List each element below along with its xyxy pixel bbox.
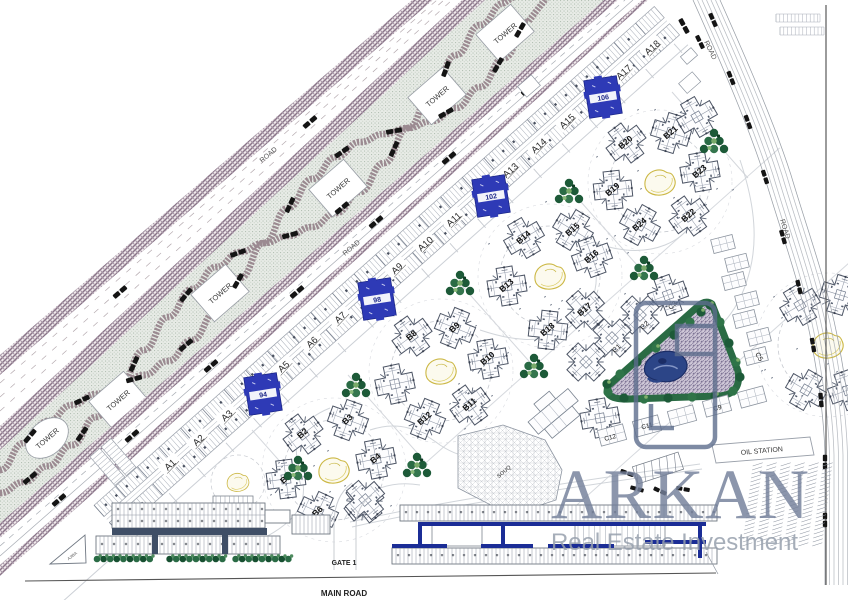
svg-text:MAIN ROAD: MAIN ROAD [321, 589, 367, 598]
svg-text:ARKAN: ARKAN [551, 456, 809, 534]
svg-text:94: 94 [259, 391, 268, 399]
svg-text:Real Estate Investment: Real Estate Investment [551, 529, 798, 556]
svg-text:98: 98 [373, 296, 382, 304]
svg-text:GATE 1: GATE 1 [332, 560, 357, 567]
